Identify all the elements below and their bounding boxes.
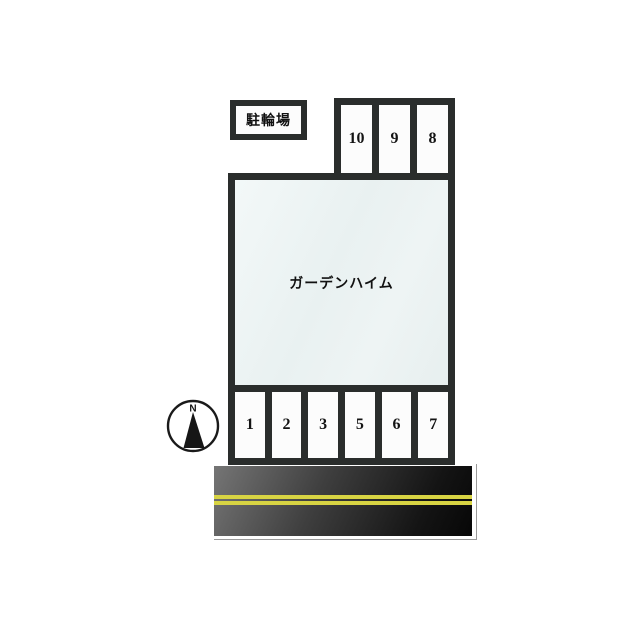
parking-site-plan: 駐輪場 10 9 8 ガーデンハイム 1 2 3 5 6	[0, 0, 640, 640]
stall-number: 6	[393, 416, 401, 434]
compass: N	[160, 393, 226, 459]
road-center-line-bottom	[214, 501, 472, 505]
stall-number: 7	[429, 416, 437, 434]
lower-stall-row: 1 2 3 5 6 7	[228, 385, 455, 465]
stall-2: 2	[272, 392, 302, 458]
stall-number: 3	[319, 416, 327, 434]
road	[214, 464, 477, 540]
stall-5: 5	[345, 392, 375, 458]
building-name-label: ガーデンハイム	[289, 273, 393, 293]
stall-9: 9	[379, 105, 410, 173]
stall-number: 2	[283, 416, 291, 434]
upper-stall-row: 10 9 8	[334, 98, 455, 180]
stall-7: 7	[418, 392, 448, 458]
building-block: ガーデンハイム	[228, 173, 455, 392]
stall-number: 1	[246, 416, 254, 434]
stall-1: 1	[235, 392, 265, 458]
road-center-line-top	[214, 495, 472, 499]
road-surface	[214, 466, 472, 536]
stall-number: 8	[429, 130, 437, 148]
stall-10: 10	[341, 105, 372, 173]
stall-3: 3	[308, 392, 338, 458]
bicycle-parking-box: 駐輪場	[230, 100, 307, 140]
stall-number: 9	[391, 130, 399, 148]
stall-6: 6	[382, 392, 412, 458]
stall-8: 8	[417, 105, 448, 173]
stall-number: 10	[349, 130, 365, 148]
stall-number: 5	[356, 416, 364, 434]
bicycle-parking-label: 駐輪場	[246, 110, 291, 130]
